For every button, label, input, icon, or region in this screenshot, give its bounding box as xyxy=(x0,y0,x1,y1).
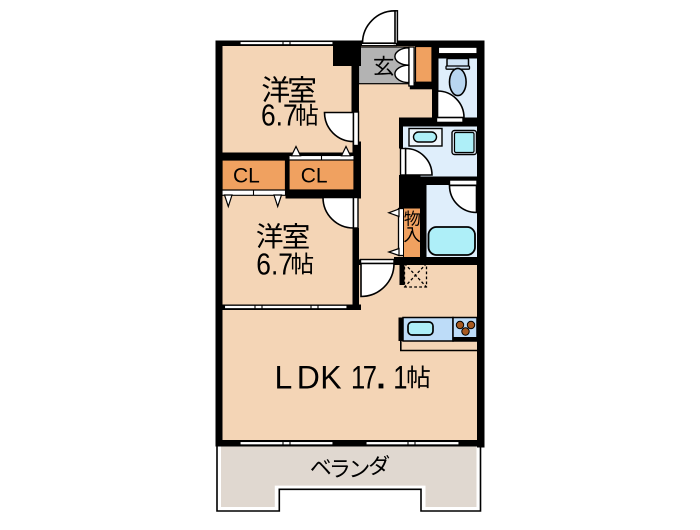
svg-text:6.7: 6.7 xyxy=(256,247,293,281)
svg-text:K: K xyxy=(320,359,341,395)
svg-text:6.7: 6.7 xyxy=(261,99,298,133)
svg-text:CL: CL xyxy=(233,165,260,188)
svg-text:1: 1 xyxy=(393,361,407,396)
svg-text:D: D xyxy=(297,359,320,395)
svg-text:7: 7 xyxy=(363,361,377,396)
svg-text:L: L xyxy=(275,359,293,395)
svg-text:CL: CL xyxy=(301,165,328,188)
